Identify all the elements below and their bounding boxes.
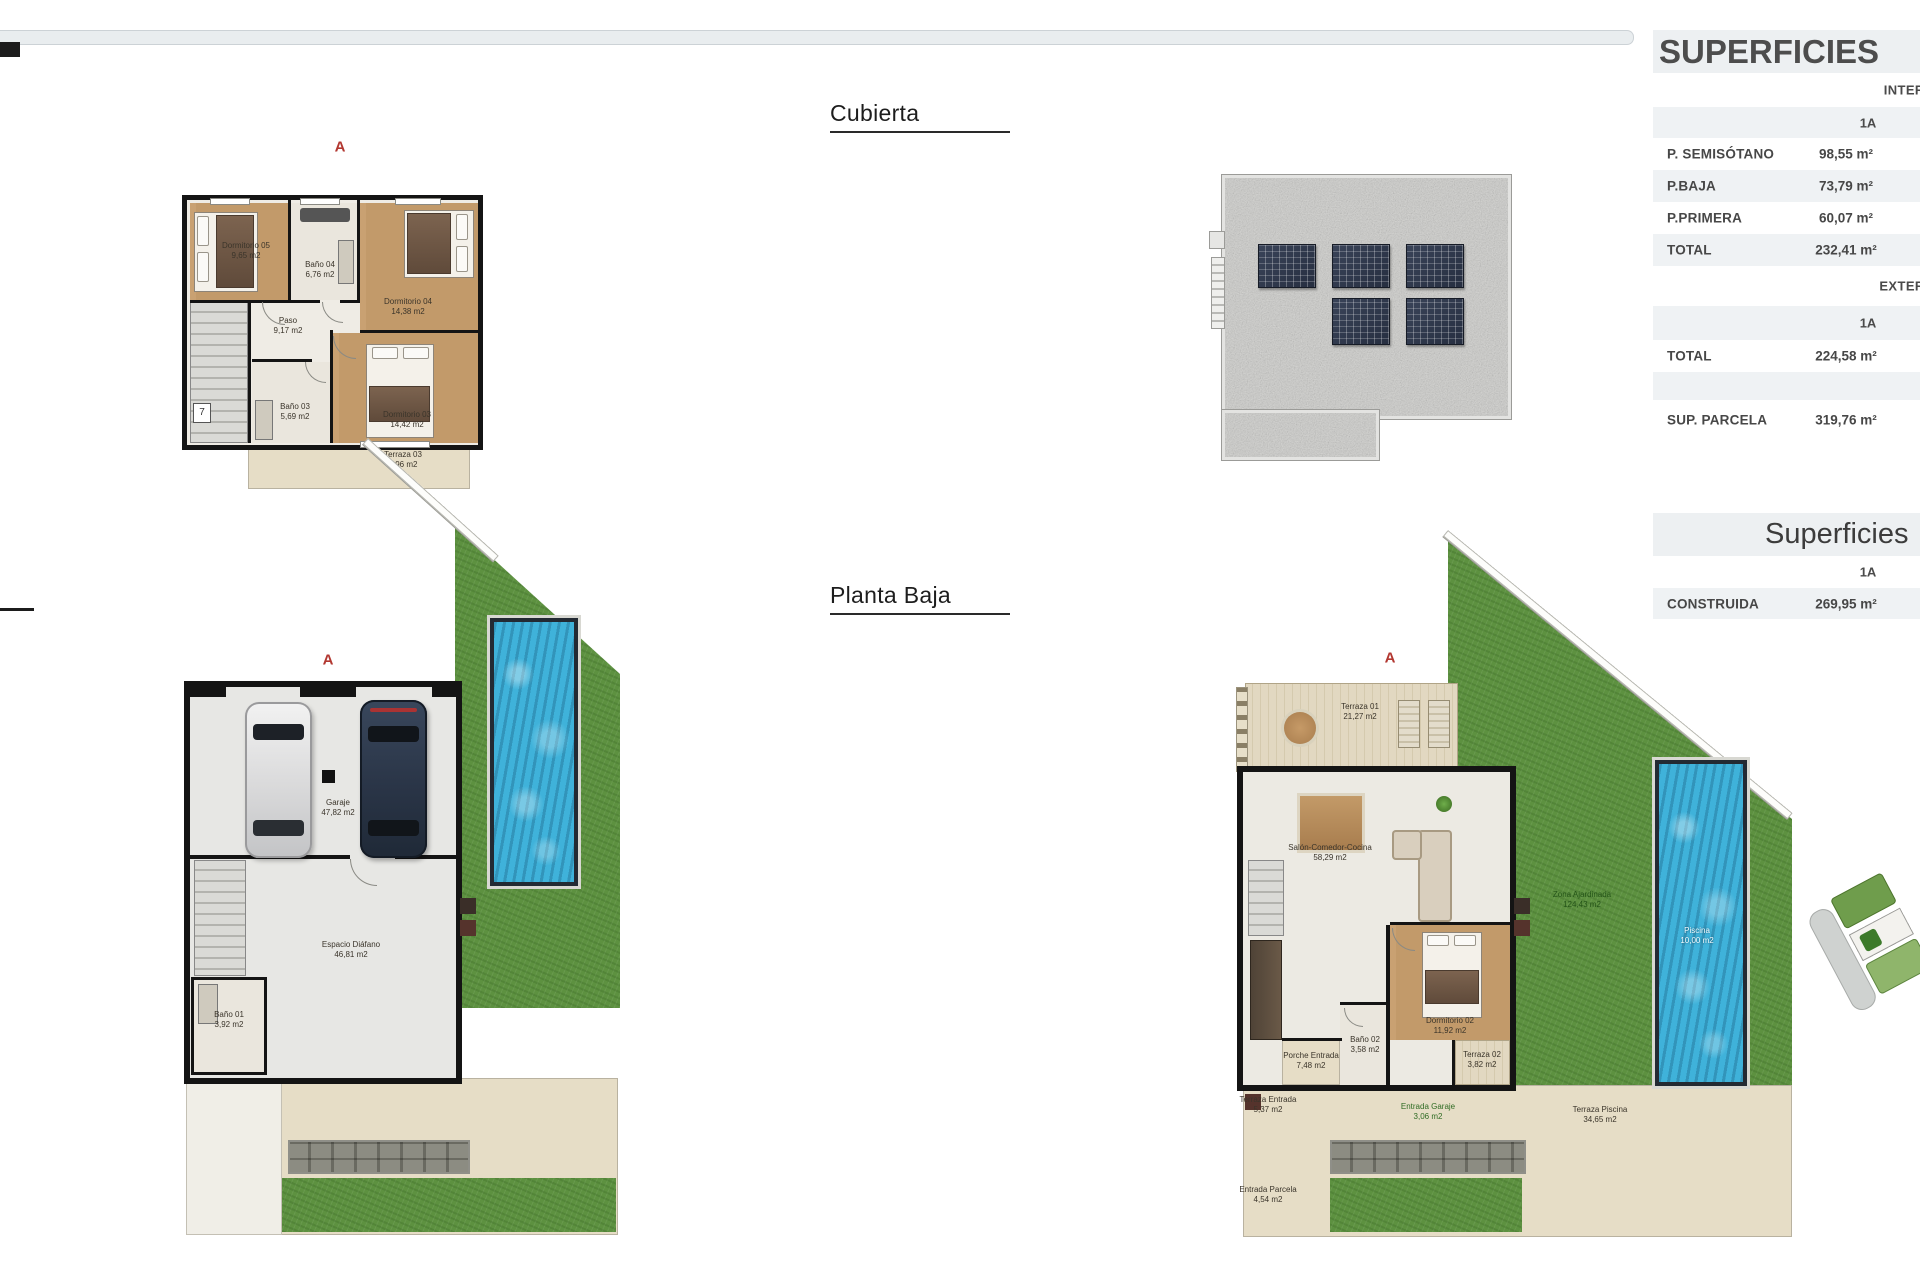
exterior-unit: 1A bbox=[1803, 316, 1920, 331]
exterior-header-row: EXTERIOR bbox=[1653, 266, 1920, 306]
paver-drive-right bbox=[1330, 1140, 1526, 1174]
wall bbox=[1386, 925, 1390, 1085]
interior-unit-row: 1A bbox=[1653, 107, 1920, 138]
bbq-block bbox=[460, 898, 476, 914]
title-cubierta: Cubierta bbox=[830, 100, 919, 127]
bed bbox=[1422, 932, 1482, 1018]
room-label: Salón-Comedor-Cocina58,29 m2 bbox=[1288, 843, 1372, 863]
room-label: Espacio Diáfano46,81 m2 bbox=[322, 940, 380, 960]
solar-panel bbox=[1332, 298, 1390, 345]
room-label: Dormitorio 0314,42 m2 bbox=[383, 410, 431, 430]
car-white bbox=[245, 702, 312, 858]
room-label: Dormitorio 0211,92 m2 bbox=[1426, 1016, 1474, 1036]
wall bbox=[1340, 1002, 1390, 1005]
superficies-title: SUPERFICIES bbox=[1653, 30, 1920, 73]
room-label: Baño 023,58 m2 bbox=[1350, 1035, 1380, 1055]
sheet-top-rule bbox=[0, 30, 1634, 45]
terraza-03-floor bbox=[248, 443, 470, 489]
room-label: Terraza Entrada5,37 m2 bbox=[1240, 1095, 1297, 1115]
row-label: P. SEMISÓTANO bbox=[1667, 147, 1774, 162]
room-label: Baño 046,76 m2 bbox=[305, 260, 335, 280]
plant bbox=[1436, 796, 1452, 812]
table-row: P.BAJA 73,79 m² bbox=[1653, 170, 1920, 202]
wall bbox=[357, 200, 360, 300]
shower bbox=[255, 400, 273, 440]
room-label: Dormitorio 0414,38 m2 bbox=[384, 297, 432, 317]
wall-pier bbox=[190, 681, 226, 697]
section-marker-primera: A bbox=[335, 139, 346, 156]
table-row: P.PRIMERA 60,07 m² bbox=[1653, 202, 1920, 234]
solar-panel bbox=[1258, 244, 1316, 288]
lawn-strip-right bbox=[1330, 1178, 1522, 1232]
sink-counter bbox=[300, 208, 350, 222]
kitchen-counter bbox=[1250, 940, 1282, 1040]
solar-panel bbox=[1332, 244, 1390, 288]
row-label: P.BAJA bbox=[1667, 179, 1716, 194]
wall bbox=[1452, 1040, 1455, 1085]
dining-table bbox=[1300, 796, 1362, 850]
wall bbox=[288, 200, 291, 300]
window bbox=[300, 198, 340, 205]
lounger bbox=[1398, 700, 1420, 748]
table-row: TOTAL 232,41 m² bbox=[1653, 234, 1920, 266]
title-cubierta-underline bbox=[830, 131, 1010, 133]
bbq-block bbox=[1514, 898, 1530, 914]
car-dark bbox=[360, 700, 427, 858]
site-key-map bbox=[1795, 864, 1920, 1026]
pool-left bbox=[490, 618, 578, 886]
room-label: Zona Ajardinada124,43 m2 bbox=[1553, 890, 1611, 910]
pool-right bbox=[1655, 760, 1747, 1086]
room-label: Baño 013,92 m2 bbox=[214, 1010, 244, 1030]
roof-vent-tab bbox=[1210, 232, 1224, 248]
room-label: Entrada Garaje3,06 m2 bbox=[1401, 1102, 1455, 1122]
row-value: 98,55 m² bbox=[1783, 147, 1909, 162]
column bbox=[322, 770, 335, 783]
row-label: P.PRIMERA bbox=[1667, 211, 1742, 226]
window bbox=[210, 198, 250, 205]
room-label: Entrada Parcela4,54 m2 bbox=[1239, 1185, 1296, 1205]
cropped-underline-remnant-left bbox=[0, 608, 34, 611]
room-label: Terraza 0121,27 m2 bbox=[1341, 702, 1379, 722]
row-label: SUP. PARCELA bbox=[1667, 413, 1767, 428]
title-planta-baja: Planta Baja bbox=[830, 582, 951, 609]
section-marker-semisotano: A bbox=[323, 652, 334, 669]
plan-sheet: { "page": { "kind": "architectural plan … bbox=[0, 0, 1920, 1280]
terraza-01-deck bbox=[1245, 683, 1458, 772]
row-value: 232,41 m² bbox=[1783, 243, 1909, 258]
title-planta-baja-underline bbox=[830, 613, 1010, 615]
interior-header-row: INTERIOR bbox=[1653, 73, 1920, 107]
window bbox=[395, 198, 441, 205]
sofa bbox=[1418, 830, 1452, 922]
room-label: Baño 035,69 m2 bbox=[280, 402, 310, 422]
room-label: Piscina10,00 m2 bbox=[1680, 926, 1713, 946]
wall bbox=[1282, 1038, 1342, 1041]
lounger bbox=[1428, 700, 1450, 748]
row-value: 319,76 m² bbox=[1783, 413, 1909, 428]
row-value: 224,58 m² bbox=[1783, 349, 1909, 364]
room-label: Garaje47,82 m2 bbox=[321, 798, 354, 818]
wall bbox=[248, 300, 251, 443]
roof-main bbox=[1222, 175, 1511, 419]
solar-panel bbox=[1406, 298, 1464, 345]
sofa bbox=[1392, 830, 1422, 860]
construida-unit: 1A bbox=[1803, 565, 1920, 580]
room-label: Porche Entrada7,48 m2 bbox=[1283, 1051, 1339, 1071]
bbq-block bbox=[1514, 920, 1530, 936]
wall bbox=[252, 359, 312, 362]
stair-number-chip: 7 bbox=[194, 404, 210, 422]
section-marker-baja: A bbox=[1385, 650, 1396, 667]
superficies-table: SUPERFICIES INTERIOR 1A P. SEMISÓTANO 98… bbox=[1653, 30, 1920, 440]
bed bbox=[404, 210, 474, 278]
room-label: Terraza 023,82 m2 bbox=[1463, 1050, 1501, 1070]
baja-stairs bbox=[1248, 860, 1284, 936]
roof-ladder-tab bbox=[1212, 258, 1224, 328]
shower bbox=[338, 240, 354, 284]
wall bbox=[190, 300, 320, 303]
side-path-left bbox=[186, 1082, 282, 1235]
wall-pier bbox=[300, 681, 356, 697]
row-value: 73,79 m² bbox=[1783, 179, 1909, 194]
row-label: TOTAL bbox=[1667, 243, 1712, 258]
exterior-header: EXTERIOR bbox=[1879, 279, 1920, 294]
roof-extension bbox=[1222, 410, 1379, 460]
cropped-title-remnant-top bbox=[0, 42, 20, 57]
round-table bbox=[1284, 712, 1316, 744]
row-value: 269,95 m² bbox=[1783, 596, 1909, 611]
bbq-block bbox=[460, 920, 476, 936]
wall bbox=[1390, 922, 1510, 925]
lawn-strip-left bbox=[282, 1178, 616, 1232]
table-row: TOTAL 224,58 m² bbox=[1653, 340, 1920, 372]
interior-unit: 1A bbox=[1803, 115, 1920, 130]
room-label: Terraza Piscina34,65 m2 bbox=[1573, 1105, 1628, 1125]
solar-panel bbox=[1406, 244, 1464, 288]
wall bbox=[330, 330, 333, 443]
wall-pier bbox=[432, 681, 456, 697]
wall bbox=[360, 330, 478, 333]
parcela-row: SUP. PARCELA 319,76 m² bbox=[1653, 400, 1920, 440]
interior-header: INTERIOR bbox=[1884, 83, 1920, 98]
room-label: Paso9,17 m2 bbox=[274, 316, 303, 336]
semisotano-stairs bbox=[194, 860, 246, 976]
row-label: TOTAL bbox=[1667, 349, 1712, 364]
row-value: 60,07 m² bbox=[1783, 211, 1909, 226]
spacer-row bbox=[1653, 372, 1920, 400]
deck-fence-posts bbox=[1236, 687, 1248, 772]
room-label: Dormitorio 059,65 m2 bbox=[222, 241, 270, 261]
exterior-unit-row: 1A bbox=[1653, 306, 1920, 340]
table-row: P. SEMISÓTANO 98,55 m² bbox=[1653, 138, 1920, 170]
paver-walk-left bbox=[288, 1140, 470, 1174]
wall bbox=[340, 300, 360, 303]
